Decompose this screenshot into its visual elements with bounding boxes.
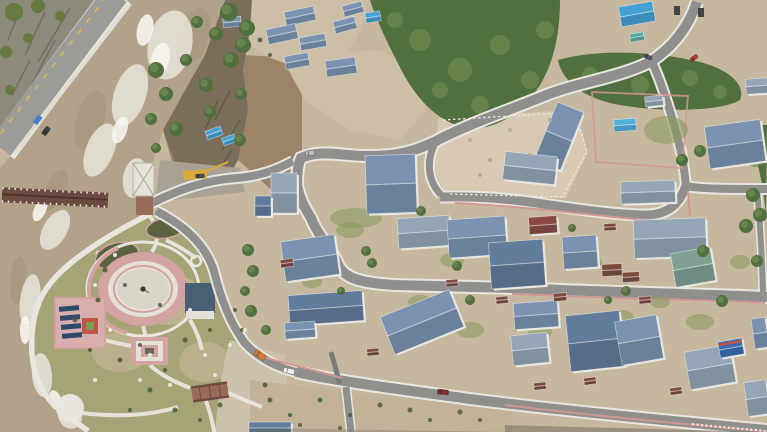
shed	[553, 292, 567, 301]
tree	[199, 78, 213, 92]
tree	[452, 261, 462, 271]
house	[645, 95, 666, 109]
tree	[235, 37, 251, 53]
bush	[208, 328, 212, 332]
vehicle	[305, 150, 314, 156]
rock-dot	[93, 283, 97, 287]
tree	[209, 27, 223, 41]
tree	[751, 255, 763, 267]
rock-dot	[108, 328, 112, 332]
bush	[118, 358, 123, 363]
rock-dot	[188, 308, 192, 312]
rock-dot	[468, 138, 472, 142]
tree	[746, 188, 760, 202]
shed	[670, 387, 683, 396]
tree	[220, 3, 238, 21]
tree	[621, 286, 631, 296]
house	[511, 332, 552, 368]
aerial-photo	[0, 0, 767, 432]
tree	[465, 295, 475, 305]
house	[704, 119, 767, 171]
tree	[148, 62, 164, 78]
house	[365, 154, 419, 216]
tree	[697, 245, 709, 257]
yard-green	[686, 314, 714, 330]
house	[397, 215, 453, 251]
rock-dot	[148, 353, 152, 357]
vehicle	[437, 389, 448, 395]
bush	[378, 403, 383, 408]
tree	[235, 88, 247, 100]
tree	[416, 206, 426, 216]
solar-platform	[55, 298, 105, 348]
house	[528, 215, 559, 236]
bush	[148, 388, 153, 393]
tree	[204, 106, 216, 118]
bush	[198, 418, 202, 422]
shed	[365, 11, 382, 23]
yard-green	[644, 116, 688, 144]
rock-dot	[488, 158, 492, 162]
bush	[268, 53, 272, 57]
house	[513, 300, 561, 331]
shed	[639, 296, 652, 304]
rock-dot	[213, 373, 217, 377]
tree	[716, 295, 728, 307]
rock-dot	[168, 383, 172, 387]
house	[284, 321, 317, 341]
yard-green	[650, 296, 670, 308]
tree	[568, 224, 576, 232]
rock-dot	[113, 253, 117, 257]
shed	[496, 296, 509, 304]
tree	[159, 87, 173, 101]
rock-dot	[478, 173, 482, 177]
tree	[169, 122, 183, 136]
bush	[348, 413, 352, 417]
tree	[191, 16, 203, 28]
tree	[242, 244, 254, 256]
tree	[247, 265, 259, 277]
shed	[614, 118, 637, 132]
tree	[337, 287, 345, 295]
rock-dot	[548, 118, 552, 122]
bush	[138, 343, 142, 347]
vehicle	[195, 174, 204, 178]
house	[562, 235, 600, 271]
bush	[263, 383, 268, 388]
tree	[151, 143, 161, 153]
bridge-tower	[133, 163, 154, 215]
bush	[163, 368, 167, 372]
tree	[145, 113, 157, 125]
rock-dot	[228, 343, 232, 347]
shed	[367, 348, 380, 356]
bush	[183, 338, 188, 343]
tree	[223, 52, 239, 68]
tree	[361, 246, 371, 256]
shed	[622, 272, 640, 283]
shed	[446, 279, 459, 287]
tree	[234, 134, 246, 146]
tree	[676, 154, 688, 166]
bush	[428, 418, 432, 422]
shed	[534, 382, 547, 390]
house	[621, 180, 678, 206]
bush	[318, 398, 323, 403]
bush	[96, 298, 101, 303]
tree	[180, 54, 192, 66]
rock-dot	[93, 378, 97, 382]
bush	[88, 348, 92, 352]
bush	[128, 408, 132, 412]
bush	[408, 408, 413, 413]
bush	[123, 283, 127, 287]
tree	[245, 305, 257, 317]
bush	[173, 408, 178, 413]
house	[271, 173, 299, 215]
yard-green	[730, 255, 750, 269]
bush	[268, 398, 273, 403]
tree	[739, 219, 753, 233]
shed	[584, 377, 597, 386]
tree	[240, 286, 250, 296]
rock-dot	[528, 153, 532, 157]
tree	[367, 258, 377, 268]
blue-pavilion	[185, 283, 215, 319]
house	[488, 239, 547, 291]
house	[670, 246, 718, 289]
green-center	[86, 322, 94, 330]
blue-pavilion-terrace	[186, 311, 214, 319]
aerial-photo-canvas	[0, 0, 767, 432]
bush	[158, 303, 162, 307]
rock-dot	[508, 128, 512, 132]
bush	[218, 403, 223, 408]
bush	[233, 308, 237, 312]
bush	[478, 418, 482, 422]
house	[746, 78, 767, 97]
rock-dot	[138, 378, 142, 382]
house	[255, 196, 273, 218]
bush	[298, 423, 302, 427]
rock-dot	[203, 353, 207, 357]
tree	[694, 145, 706, 157]
bush	[288, 413, 292, 417]
tree	[239, 20, 255, 36]
shed	[604, 223, 616, 231]
bush	[258, 38, 263, 43]
bush	[458, 410, 463, 415]
promenade-plaza-bump	[56, 394, 84, 422]
shed	[602, 263, 623, 276]
tree	[753, 208, 767, 222]
bush	[73, 318, 78, 323]
bush	[103, 268, 108, 273]
tree	[604, 296, 612, 304]
rock-dot	[243, 328, 247, 332]
shed	[280, 258, 294, 268]
house	[614, 314, 665, 367]
square-pavilion	[131, 337, 168, 365]
tree	[261, 325, 271, 335]
